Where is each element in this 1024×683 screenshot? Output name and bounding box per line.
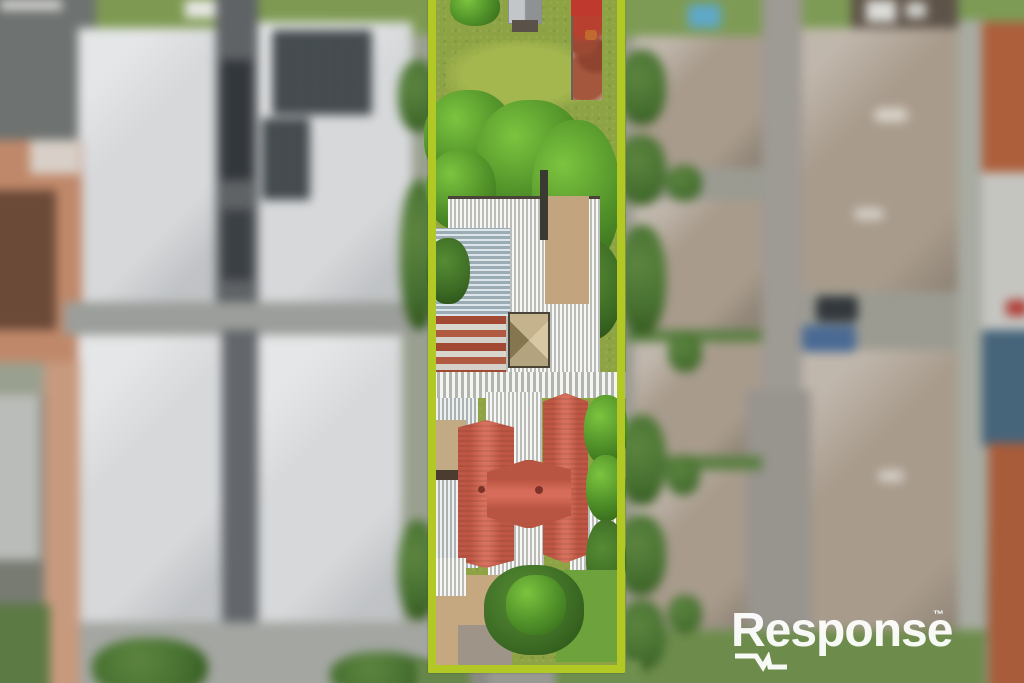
watermark-logo: Response ™ <box>725 605 960 677</box>
skylight <box>874 108 908 122</box>
skylight <box>878 470 904 482</box>
tree <box>92 638 208 683</box>
bush <box>666 455 700 495</box>
greenery <box>0 604 50 683</box>
response-pulse-icon <box>735 652 789 672</box>
terracotta-roof <box>982 22 1024 172</box>
skylight <box>854 208 884 220</box>
bush <box>668 332 702 372</box>
aerial-photo: Response ™ <box>0 0 1024 683</box>
solar-panels <box>272 30 372 115</box>
pool <box>688 4 721 28</box>
brand-wordmark: Response <box>731 607 952 655</box>
tree <box>330 652 430 683</box>
fence <box>0 0 62 10</box>
red-car <box>1006 300 1024 316</box>
trademark-symbol: ™ <box>933 609 944 621</box>
bush <box>668 595 702 633</box>
white-vehicle <box>906 2 926 18</box>
hip-roof-house <box>0 395 44 560</box>
roof <box>30 140 80 174</box>
townhouse-roof <box>78 335 222 628</box>
white-vehicle <box>185 0 218 18</box>
property-boundary-outline <box>428 0 625 673</box>
dark-car <box>816 296 858 322</box>
solar-panels <box>262 118 310 200</box>
townhouse-roof <box>78 28 216 302</box>
dark-roof <box>0 190 56 330</box>
blue-car <box>802 325 856 352</box>
white-vehicle <box>866 0 896 22</box>
bush <box>666 165 702 201</box>
pool <box>982 330 1024 446</box>
townhouse-roof <box>258 335 402 622</box>
neighbourhood-right <box>612 0 1024 683</box>
parked-cars <box>222 210 252 280</box>
parked-cars <box>221 60 252 180</box>
neighbourhood-left <box>0 0 450 683</box>
terracotta-roof <box>989 443 1024 683</box>
